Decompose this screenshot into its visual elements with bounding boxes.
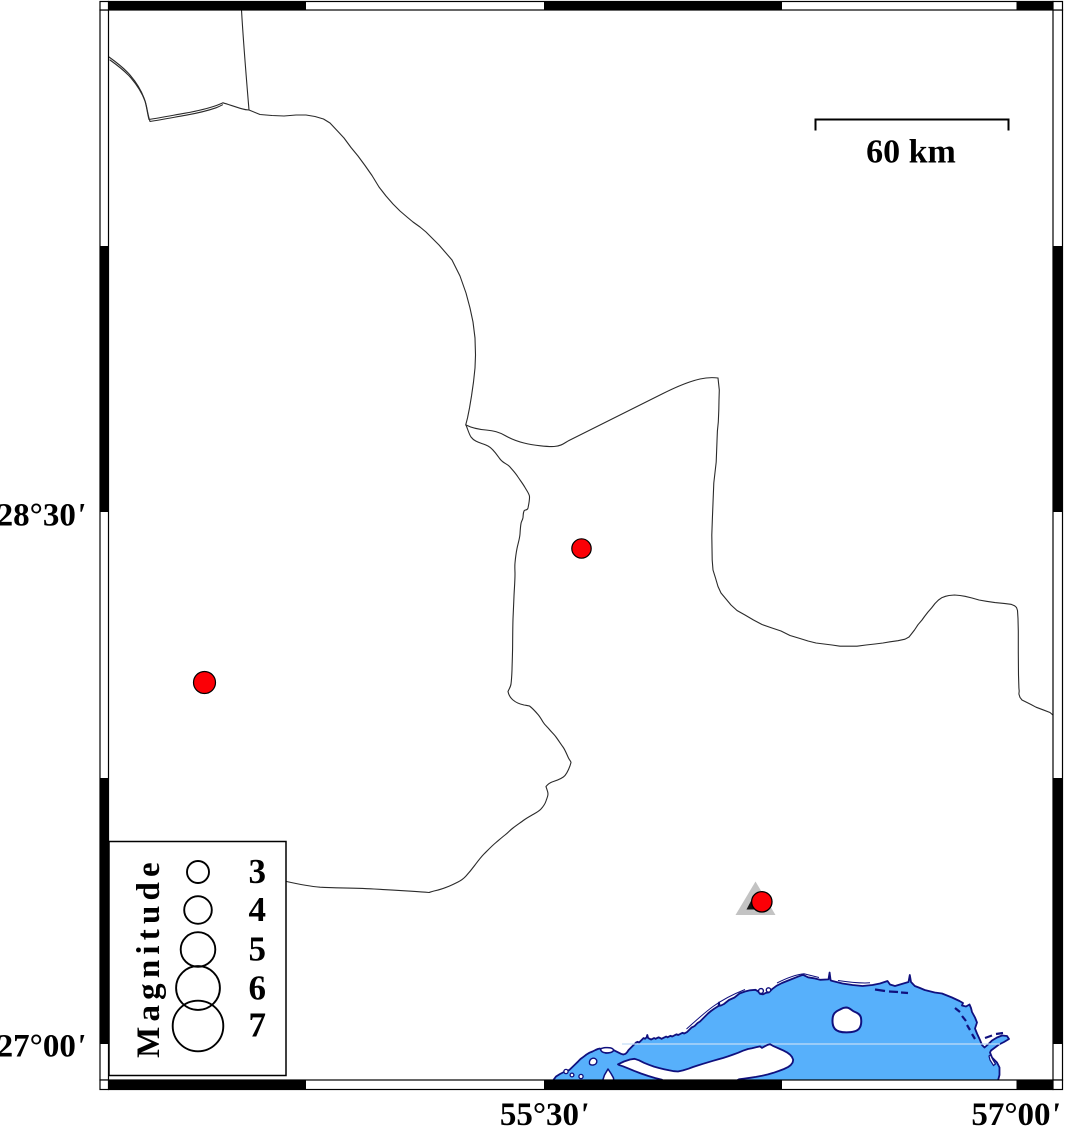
svg-text:Magnitude: Magnitude xyxy=(131,857,167,1058)
svg-text:60 km: 60 km xyxy=(866,134,956,171)
svg-text:3: 3 xyxy=(249,852,267,891)
svg-text:4: 4 xyxy=(249,890,267,929)
svg-text:57°00': 57°00' xyxy=(971,1097,1059,1128)
svg-text:6: 6 xyxy=(249,969,267,1008)
svg-text:55°30': 55°30' xyxy=(500,1097,588,1128)
svg-text:27°00': 27°00' xyxy=(0,1029,85,1065)
svg-text:28°30': 28°30' xyxy=(0,498,85,534)
svg-text:7: 7 xyxy=(249,1006,267,1045)
svg-text:5: 5 xyxy=(249,930,267,969)
